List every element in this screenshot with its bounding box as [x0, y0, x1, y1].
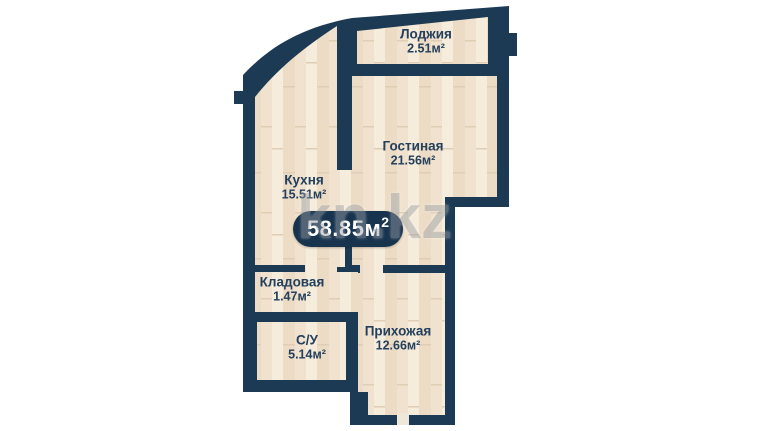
entrance-door-gap [397, 413, 409, 425]
doorway-hallway [360, 265, 383, 273]
corridor-floor-lower [337, 272, 358, 312]
total-area-value: 58.85м [307, 216, 381, 242]
room-floor-storage [255, 272, 337, 312]
total-area-sup: 2 [381, 214, 389, 230]
doorway-storage [305, 265, 337, 272]
corridor-floor-stub-side [337, 247, 345, 267]
total-area-badge: 58.85м 2 [293, 211, 403, 247]
room-floor-bathroom [257, 322, 346, 380]
room-floor-hallway [358, 273, 445, 415]
floorplan-canvas: Лоджия 2.51м² Гостиная 21.56м² Кухня 15.… [0, 0, 765, 431]
